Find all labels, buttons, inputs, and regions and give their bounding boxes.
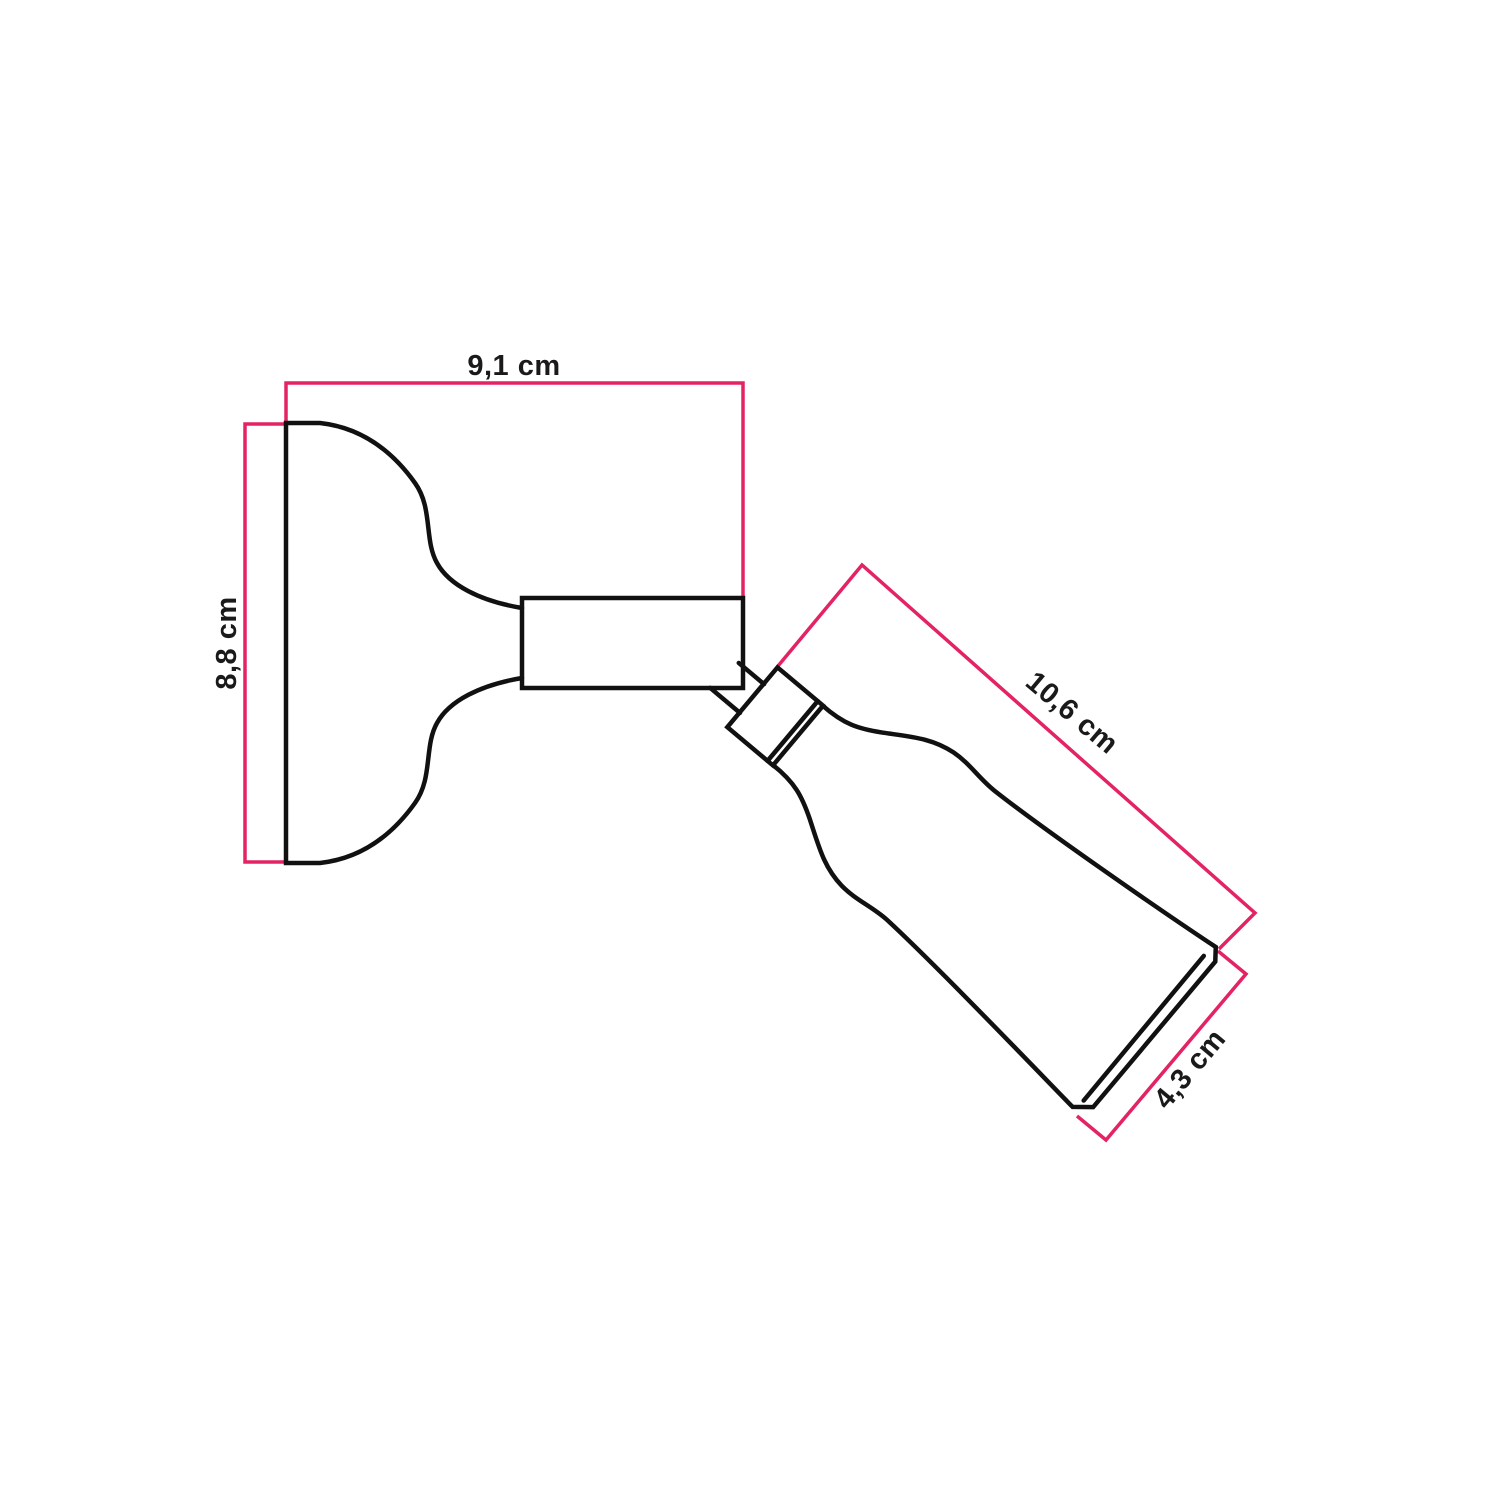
dim-width-label: 9,1 cm xyxy=(467,350,560,382)
dim-diameter-label: 4,3 cm xyxy=(1148,1023,1232,1115)
socket-body-outline xyxy=(522,598,743,688)
dimension-diagram: 9,1 cm 8,8 cm 10,6 cm 4,3 cm xyxy=(0,0,1500,1500)
dim-height-bracket xyxy=(245,424,286,862)
spotlight-assembly xyxy=(654,591,1223,1117)
dimension-brackets xyxy=(245,383,1255,1140)
spot-body-outline xyxy=(729,654,1223,1117)
wall-plate-outline xyxy=(286,423,522,863)
hinge-lower-line xyxy=(710,688,740,713)
dimension-labels: 9,1 cm 8,8 cm 10,6 cm 4,3 cm xyxy=(211,350,1232,1115)
product-outline xyxy=(286,423,1223,1117)
dim-length-label: 10,6 cm xyxy=(1019,666,1124,761)
dim-height-label: 8,8 cm xyxy=(211,596,243,689)
swivel-joint-flange-line xyxy=(768,701,818,761)
dim-width-bracket xyxy=(286,383,743,597)
diagram-canvas: 9,1 cm 8,8 cm 10,6 cm 4,3 cm xyxy=(0,0,1500,1500)
